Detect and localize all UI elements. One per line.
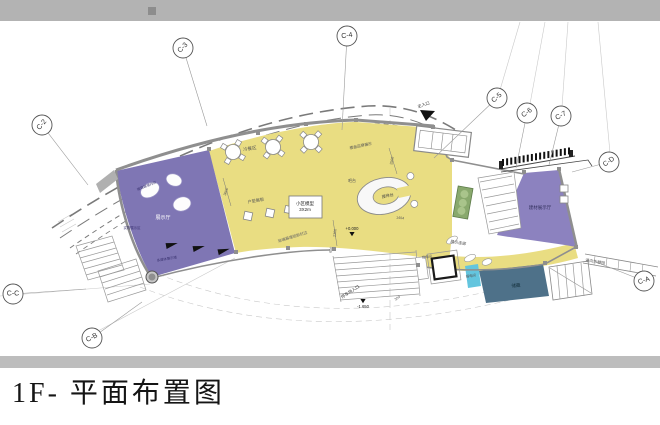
level-triangle — [360, 299, 365, 303]
stair-to-materials-hall — [478, 172, 521, 234]
level-+0.000: +0.000 — [346, 226, 360, 231]
floor-plan-page: 1F- 平面布置图 — [0, 0, 660, 425]
label-materials-hall: 建材展示厅 — [529, 204, 552, 211]
dimension-1404: 1404 — [396, 216, 404, 221]
bottom-gray-bar — [0, 356, 660, 368]
planter — [453, 186, 473, 219]
label-main-entrance: 主入口 — [416, 99, 430, 109]
grid-marker-C-2: C-2 — [32, 115, 88, 185]
grid-marker-C-A: C-A — [596, 262, 654, 291]
top-bar-mark — [148, 7, 156, 15]
grid-marker-C-D: C-D — [572, 152, 619, 172]
drawing-title: 1F- 平面布置图 — [12, 371, 225, 411]
top-gray-bar — [0, 0, 660, 21]
stair-right — [549, 261, 592, 300]
stair-left-lower — [98, 259, 146, 302]
grid-marker-C-C: C-C — [3, 284, 86, 304]
label-model-size: 3X2m — [299, 207, 311, 212]
table-top — [303, 134, 319, 150]
grid-marker-C-B: C-B — [82, 302, 142, 348]
label-exhibition-hall: 展示厅 — [155, 215, 170, 221]
label-display-corridor: 展示连廊 — [450, 238, 467, 246]
level--1.650: -1.650 — [357, 304, 370, 309]
louver-pergola — [499, 150, 592, 172]
grid-marker-C-3: C-3 — [173, 38, 207, 126]
grid-bubble-label: C-C — [7, 291, 19, 298]
stair-left-upper — [76, 236, 124, 280]
label-object-display-area: 实物展示区 — [124, 225, 142, 230]
label-model-title: 小区模型 — [296, 200, 314, 207]
dimension-600: 600 — [329, 247, 334, 254]
grid-marker-C-4: C-4 — [337, 26, 357, 130]
main-entrance-arrow — [420, 110, 435, 121]
label-parking-entrance: 停车场入口 — [339, 283, 360, 300]
label-bar-counter: 吧台 — [348, 177, 356, 183]
